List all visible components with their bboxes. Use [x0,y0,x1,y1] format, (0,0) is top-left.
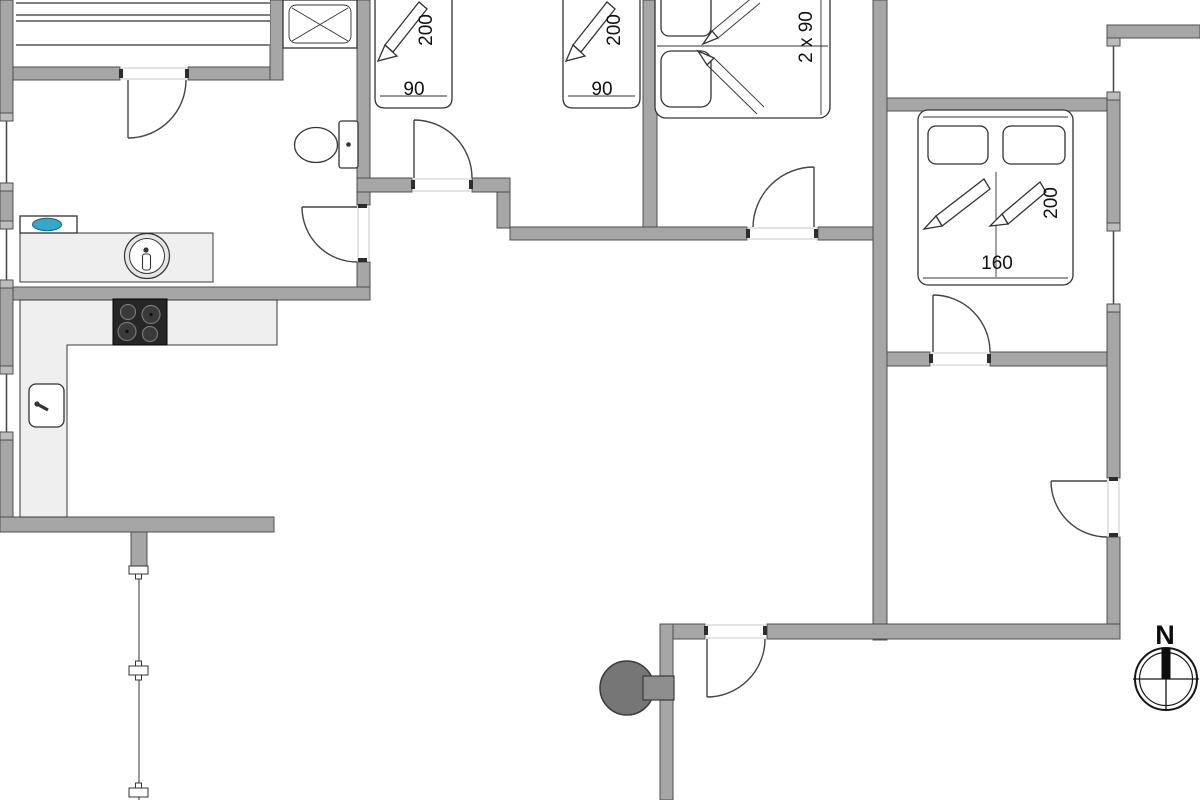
wall-bath-north-right [188,67,283,80]
bed1-width-label: 90 [403,79,424,100]
toilet [295,121,359,168]
compass-north-label: N [1155,620,1175,650]
bed2-length-label: 200 [604,14,625,46]
utility-sink [20,216,77,233]
compass-rose: N [1133,620,1199,711]
wall-shower-left [270,0,283,80]
wall-left-top [0,0,13,117]
floor-plan-canvas: 200 90 200 90 2 x 90 200 160 N [0,0,1200,800]
compass-needle-icon [1162,648,1171,679]
window-sill [0,280,13,288]
door-bathroom-inner [302,207,357,262]
pillow [928,126,988,164]
wall-bottom-vertical [660,624,673,800]
wall-bedroom1-south-right [472,178,510,192]
vanity-counter [20,233,213,282]
wall-left-mid1 [0,190,13,223]
window-sill [0,366,13,374]
wall-bottom-right-horizontal [767,624,1120,639]
toilet-bowl [295,128,338,163]
door-bedroom3 [753,167,814,227]
window-sill [1107,92,1120,100]
bed3-size-label: 2 x 90 [796,11,817,63]
door-bottom-room [707,639,765,697]
washbasin-tap [143,254,151,270]
window-sill [0,113,13,121]
bed2-width-label: 90 [591,79,612,100]
door-bedroom1 [414,120,472,178]
bed1-length-label: 200 [416,14,437,46]
fence-post [129,788,148,797]
wall-bath-east-top [357,0,370,205]
wall-bedroom1-south-left [357,178,412,192]
wall-right-seg2 [1107,312,1120,478]
pillow [1003,126,1065,164]
wall-bath-south [13,287,370,300]
wall-bottom-left-piece [673,624,705,639]
wall-bedroom4-south-left [887,352,930,366]
window-sill [0,432,13,440]
wall-corridor-north-left [510,227,747,240]
window-sill [1107,304,1120,312]
wall-bedroom4-south-right [990,352,1113,366]
sink-water [33,218,62,230]
wardrobe-row [16,0,270,46]
shower [283,0,357,48]
wall-bath-north-left [13,67,120,80]
bed4-length-label: 200 [1041,187,1062,219]
fence-post [129,666,148,675]
toilet-button [346,142,351,147]
kitchen-counter [20,299,277,517]
door-exterior-right [1051,481,1107,537]
door-bedroom4 [933,295,990,352]
wall-bedroom4-north [887,98,1113,111]
wall-corridor-north-right [818,227,873,240]
wall-central-vertical [873,0,887,640]
door-bathroom-entry [128,80,186,138]
bed4-width-label: 160 [981,253,1013,274]
pillow [661,0,711,36]
wall-bottom-left-horizontal [0,517,274,532]
wall-fence-stub [131,532,147,566]
window-sill [1107,38,1120,46]
wall-left-mid2 [0,288,13,368]
window-sill [0,221,13,229]
fence [129,566,148,800]
wall-jog [497,192,510,228]
wall-right-seg1 [1107,100,1120,223]
window-sill [0,183,13,191]
floor-plan: 200 90 200 90 2 x 90 200 160 N [0,0,1200,800]
window-sill [1107,223,1120,231]
wall-top-right-horizontal [1107,25,1200,38]
kitchen-sink [29,384,64,427]
